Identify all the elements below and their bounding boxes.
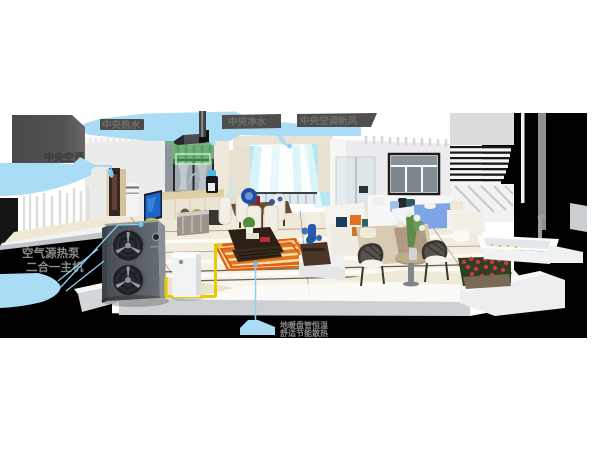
svg-text:舒适节能散热: 舒适节能散热: [279, 328, 328, 338]
svg-text:中央空调新风: 中央空调新风: [300, 115, 358, 127]
svg-text:空气源热泵: 空气源热泵: [22, 246, 80, 260]
svg-text:中央热水: 中央热水: [102, 119, 141, 131]
svg-text:中央净水: 中央净水: [228, 116, 267, 128]
